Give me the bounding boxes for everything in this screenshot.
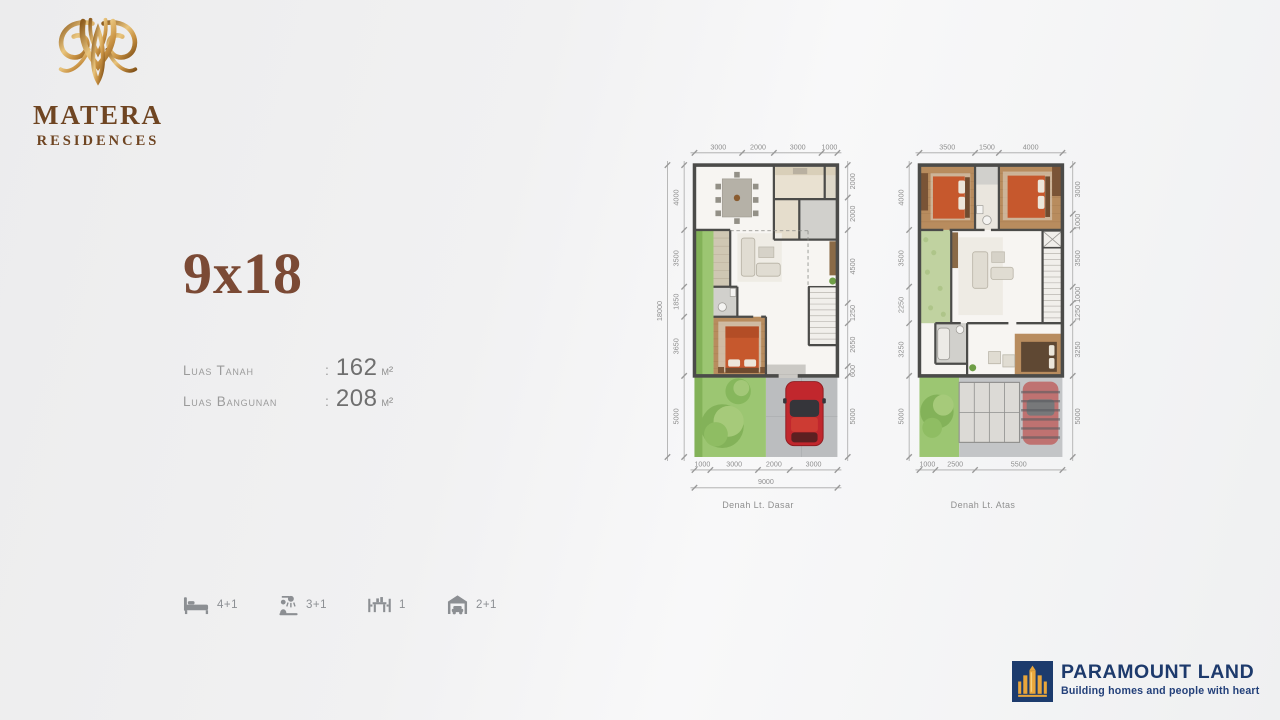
- dimension-label: 1500: [979, 144, 995, 151]
- dimension-label: 2000: [848, 206, 857, 222]
- plan-caption: Denah Lt. Dasar: [650, 500, 866, 510]
- unit-type-title: 9x18: [183, 240, 303, 307]
- void-garden: [919, 230, 951, 323]
- spec-luas-bangunan: Luas Bangunan : 208 m²: [183, 385, 393, 409]
- garage-icon: [446, 594, 469, 615]
- dimension-label: 3000: [790, 144, 806, 151]
- dimension-label: 4000: [1023, 144, 1039, 151]
- dimension-label: 5000: [1073, 408, 1082, 424]
- dimension-label: 2650: [848, 337, 857, 353]
- bathroom: [714, 287, 738, 317]
- bedroom-2: [919, 165, 975, 230]
- feature-dining: 1: [367, 594, 406, 615]
- spec-separator: :: [325, 362, 329, 378]
- dimension-label: 3500: [897, 250, 906, 266]
- spec-label: Luas Bangunan: [183, 394, 325, 409]
- developer-tagline: Building homes and people with heart: [1061, 685, 1260, 697]
- floorplan-upper-drawing: 3500150040001000250055004000350022503250…: [875, 144, 1091, 504]
- dimension-label: 4000: [897, 189, 906, 205]
- bathroom-upper: [975, 165, 999, 230]
- dimension-label: 9000: [758, 477, 774, 486]
- dimension-label: 1000: [822, 144, 838, 151]
- dimension-label: 3000: [726, 459, 742, 468]
- dimension-label: 1850: [672, 294, 681, 310]
- matera-flourish-icon: [50, 16, 146, 100]
- dimension-label: 2000: [848, 173, 857, 189]
- floorplan-upper-block: 3500150040001000250055004000350022503250…: [875, 144, 1091, 516]
- spec-value: 162: [336, 354, 378, 382]
- dimension-label: 2250: [897, 297, 906, 313]
- dimension-label: 1000: [1073, 287, 1082, 303]
- dimension-label: 2000: [766, 459, 782, 468]
- car-top-view: [783, 382, 826, 446]
- floorplan-ground-drawing: 3000200030001000100030002000300090004000…: [650, 144, 866, 504]
- deck: [714, 230, 731, 287]
- dimension-label: 3650: [672, 338, 681, 354]
- dimension-label: 1000: [1073, 214, 1082, 230]
- spec-separator: :: [325, 393, 329, 409]
- bed: [725, 326, 758, 373]
- spec-value: 208: [336, 385, 378, 413]
- dimension-label: 2000: [750, 144, 766, 151]
- feature-carport: 2+1: [446, 594, 497, 615]
- dimension-label: 4500: [848, 258, 857, 274]
- dimension-label: 1250: [1073, 305, 1082, 321]
- spec-unit: m²: [381, 363, 393, 378]
- dimension-label: 3000: [710, 144, 726, 151]
- dimension-label: 5000: [672, 408, 681, 424]
- dimension-label: 1000: [919, 459, 935, 468]
- bed-icon: [183, 595, 210, 615]
- floorplan-ground: [694, 165, 837, 457]
- dimension-label: 4000: [672, 189, 681, 205]
- dining-icon: [367, 594, 392, 615]
- feature-bathrooms: 3+1: [278, 593, 327, 616]
- dimension-label: 1000: [694, 459, 710, 468]
- developer-logo: PARAMOUNT LAND Building homes and people…: [1012, 661, 1260, 702]
- spec-unit: m²: [381, 394, 393, 409]
- dimension-label: 3000: [1073, 181, 1082, 197]
- dimension-label: 1250: [848, 305, 857, 321]
- developer-name: PARAMOUNT LAND: [1061, 663, 1260, 683]
- stairs: [809, 287, 838, 345]
- stairs-upper: [1043, 248, 1063, 323]
- dimension-label: 5000: [897, 408, 906, 424]
- dimension-label: 3250: [897, 341, 906, 357]
- dimension-label: 3000: [806, 459, 822, 468]
- feature-count: 4+1: [217, 599, 238, 611]
- brand-subtitle: RESIDENCES: [22, 133, 174, 150]
- dimension-label: 2500: [947, 459, 963, 468]
- dimension-label: 3500: [939, 144, 955, 151]
- floorplan-upper: [919, 165, 1062, 457]
- service-area: [799, 199, 837, 240]
- unit-specs: Luas Tanah : 162 m² Luas Bangunan : 208 …: [183, 354, 393, 416]
- spec-label: Luas Tanah: [183, 363, 325, 378]
- shower-icon: [278, 593, 299, 616]
- dimension-label: 600: [848, 365, 857, 377]
- feature-bedrooms: 4+1: [183, 595, 238, 615]
- dimension-label: 3500: [1073, 250, 1082, 266]
- bathroom-2-upper: [935, 323, 967, 364]
- brand-logo: MATERA RESIDENCES: [22, 16, 174, 150]
- dimension-label: 18000: [655, 301, 664, 321]
- carport-roof: [959, 376, 1062, 457]
- dimension-label: 3250: [1073, 341, 1082, 357]
- feature-row: 4+1 3+1 1: [183, 593, 497, 616]
- brand-name: MATERA: [22, 102, 174, 130]
- plan-caption: Denah Lt. Atas: [875, 500, 1091, 510]
- feature-count: 3+1: [306, 599, 327, 611]
- paramount-land-icon: [1012, 661, 1053, 702]
- bedroom-3: [999, 165, 1063, 230]
- roof-garden: [919, 376, 959, 457]
- bedroom: [714, 317, 766, 376]
- dimension-label: 5500: [1011, 459, 1027, 468]
- brochure-slide: MATERA RESIDENCES 9x18 Luas Tanah : 162 …: [0, 0, 1280, 720]
- feature-count: 1: [399, 599, 406, 611]
- front-garden: [694, 376, 765, 457]
- lift-shaft: [1043, 231, 1063, 248]
- spec-luas-tanah: Luas Tanah : 162 m²: [183, 354, 393, 378]
- dimension-label: 3500: [672, 250, 681, 266]
- dimension-label: 5000: [848, 408, 857, 424]
- floorplan-ground-block: 3000200030001000100030002000300090004000…: [650, 144, 866, 516]
- feature-count: 2+1: [476, 599, 497, 611]
